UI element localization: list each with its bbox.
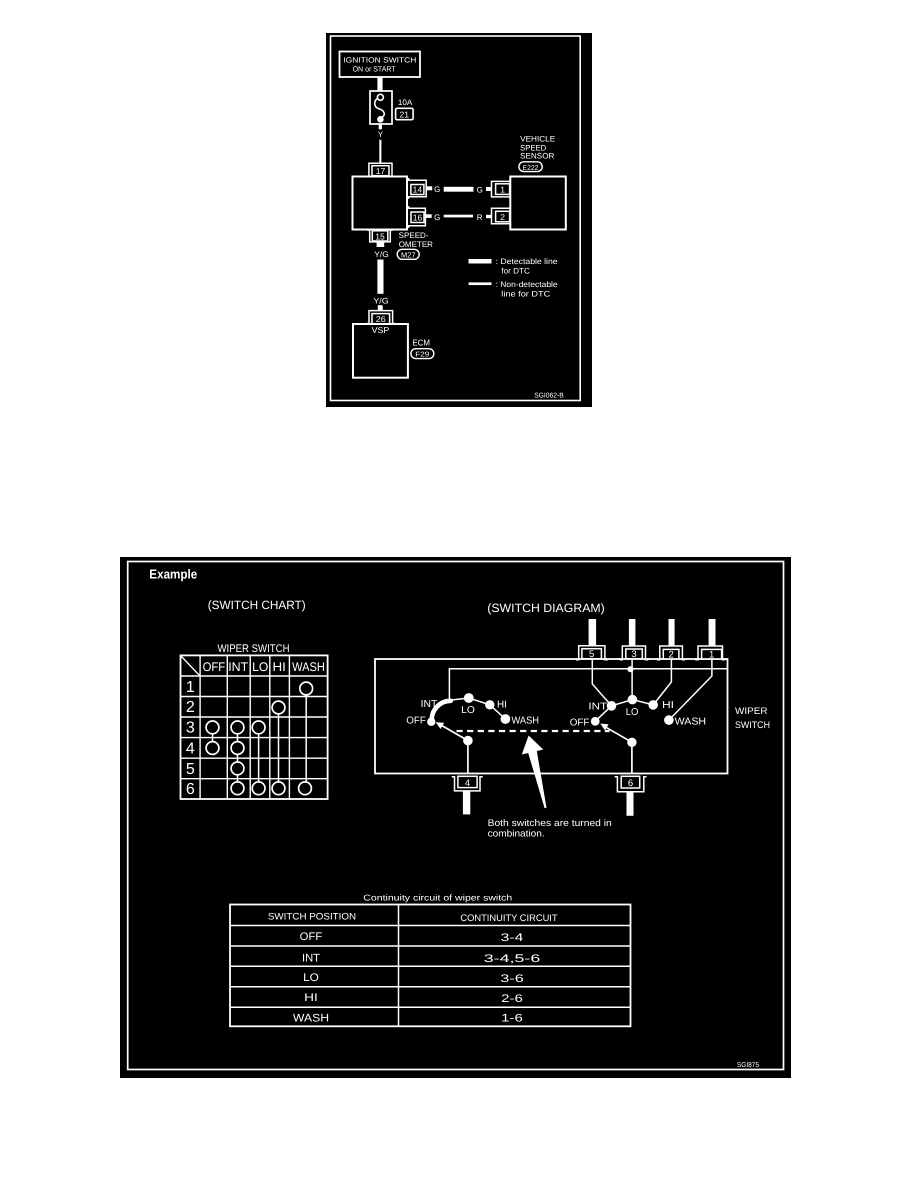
svg-text:LO: LO bbox=[252, 660, 268, 674]
svg-text:CONTINUITY CIRCUIT: CONTINUITY CIRCUIT bbox=[460, 913, 557, 924]
svg-text:3-4,5-6: 3-4,5-6 bbox=[484, 953, 541, 965]
svg-text:OFF: OFF bbox=[203, 660, 226, 674]
svg-text:LO: LO bbox=[461, 705, 475, 716]
svg-text:SWITCH POSITION: SWITCH POSITION bbox=[268, 912, 356, 923]
svg-text:SGI062-B: SGI062-B bbox=[534, 392, 564, 399]
svg-text:E222: E222 bbox=[523, 165, 539, 172]
svg-text:combination.: combination. bbox=[488, 829, 545, 840]
svg-text:VSP: VSP bbox=[372, 325, 390, 335]
svg-text:14: 14 bbox=[413, 185, 423, 195]
svg-text:Y/G: Y/G bbox=[374, 250, 389, 259]
svg-text:WASH: WASH bbox=[293, 1013, 329, 1025]
svg-text:G: G bbox=[434, 213, 440, 222]
svg-text:OFF: OFF bbox=[300, 931, 323, 943]
svg-text:6: 6 bbox=[628, 778, 633, 789]
svg-text:IGNITION SWITCH: IGNITION SWITCH bbox=[343, 56, 416, 65]
svg-text:F29: F29 bbox=[415, 352, 429, 359]
svg-text:3-4: 3-4 bbox=[501, 932, 524, 944]
svg-text:10A: 10A bbox=[398, 98, 413, 107]
svg-text:Continuity circuit of wiper sw: Continuity circuit of wiper switch bbox=[363, 892, 512, 902]
svg-text:OMETER: OMETER bbox=[399, 240, 434, 249]
svg-text:SGI875: SGI875 bbox=[737, 1062, 759, 1069]
svg-text:1: 1 bbox=[186, 679, 195, 696]
svg-text:HI: HI bbox=[662, 700, 674, 711]
svg-text:26: 26 bbox=[376, 314, 386, 324]
svg-text:R: R bbox=[477, 213, 483, 222]
svg-text:3: 3 bbox=[186, 720, 195, 737]
svg-text:21: 21 bbox=[400, 109, 410, 119]
svg-text:SPEED-: SPEED- bbox=[399, 231, 429, 240]
svg-text:OFF: OFF bbox=[570, 718, 590, 729]
svg-text:4: 4 bbox=[186, 740, 195, 757]
svg-text:WIPER SWITCH: WIPER SWITCH bbox=[218, 643, 290, 655]
svg-text:HI: HI bbox=[273, 660, 286, 674]
svg-text:: Detectable line: : Detectable line bbox=[496, 257, 559, 266]
svg-text:(SWITCH DIAGRAM): (SWITCH DIAGRAM) bbox=[487, 601, 605, 615]
svg-text:Example: Example bbox=[149, 567, 197, 582]
svg-text:Y/G: Y/G bbox=[373, 297, 388, 306]
svg-text:WASH: WASH bbox=[292, 660, 325, 674]
svg-text:2-6: 2-6 bbox=[501, 993, 523, 1005]
svg-text:for DTC: for DTC bbox=[501, 267, 530, 276]
svg-text:6: 6 bbox=[186, 781, 195, 798]
svg-text:1-6: 1-6 bbox=[501, 1013, 523, 1025]
svg-text:SENSOR: SENSOR bbox=[520, 152, 555, 161]
svg-text:Y: Y bbox=[378, 130, 384, 139]
svg-text:Both switches are turned in: Both switches are turned in bbox=[488, 818, 612, 829]
svg-text:4: 4 bbox=[465, 778, 470, 789]
svg-text:VEHICLE: VEHICLE bbox=[520, 134, 555, 143]
svg-text:(SWITCH CHART): (SWITCH CHART) bbox=[208, 598, 306, 612]
svg-text:5: 5 bbox=[186, 761, 195, 778]
svg-text:SWITCH: SWITCH bbox=[735, 720, 770, 731]
svg-text:3: 3 bbox=[631, 649, 636, 660]
svg-text:WIPER: WIPER bbox=[735, 706, 768, 717]
svg-text:17: 17 bbox=[376, 166, 386, 176]
svg-text:3-6: 3-6 bbox=[500, 973, 524, 985]
svg-text:G: G bbox=[477, 186, 483, 195]
svg-text:LO: LO bbox=[303, 972, 319, 984]
svg-text:2: 2 bbox=[668, 649, 673, 660]
svg-text:1: 1 bbox=[709, 649, 714, 660]
svg-text:1: 1 bbox=[500, 184, 505, 194]
svg-text:OFF: OFF bbox=[406, 716, 426, 727]
svg-text:line for DTC: line for DTC bbox=[501, 290, 550, 299]
svg-text:2: 2 bbox=[186, 699, 195, 716]
svg-text:16: 16 bbox=[413, 213, 423, 223]
svg-text:WASH: WASH bbox=[675, 717, 706, 728]
svg-text:INT: INT bbox=[588, 702, 607, 713]
svg-text:M27: M27 bbox=[401, 250, 416, 259]
svg-text:LO: LO bbox=[626, 707, 639, 718]
svg-text:G: G bbox=[434, 185, 440, 194]
svg-text:15: 15 bbox=[375, 231, 385, 241]
svg-text:5: 5 bbox=[589, 649, 594, 660]
svg-text:INT: INT bbox=[228, 660, 248, 674]
svg-text:2: 2 bbox=[500, 212, 505, 222]
svg-text:ECM: ECM bbox=[412, 338, 430, 348]
svg-text:HI: HI bbox=[304, 992, 318, 1004]
svg-text:ON or START: ON or START bbox=[353, 65, 396, 74]
svg-text:INT: INT bbox=[421, 699, 438, 710]
svg-text:INT: INT bbox=[302, 953, 320, 965]
svg-text:: Non-detectable: : Non-detectable bbox=[496, 280, 559, 289]
svg-text:HI: HI bbox=[497, 700, 507, 711]
svg-text:WASH: WASH bbox=[512, 716, 540, 727]
